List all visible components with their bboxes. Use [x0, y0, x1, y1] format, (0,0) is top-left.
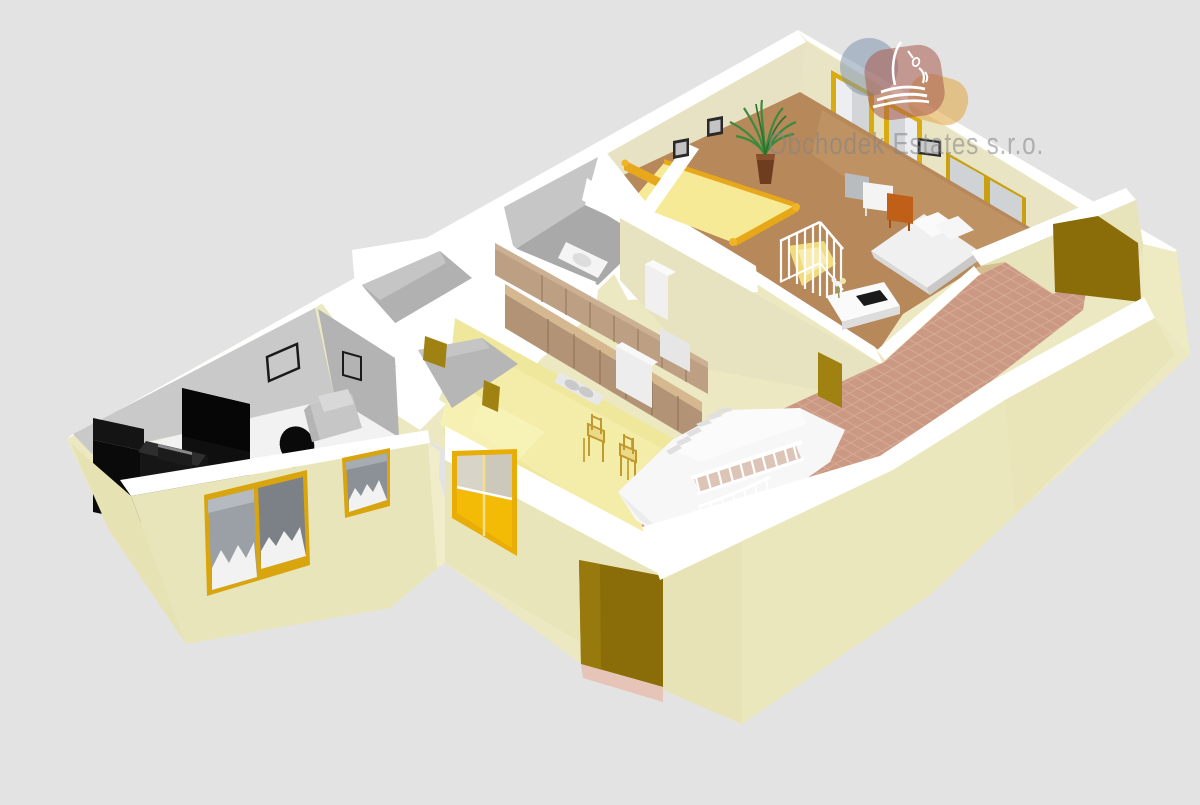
svg-text:Obchodek Estates s.r.o.: Obchodek Estates s.r.o. — [768, 126, 1044, 161]
